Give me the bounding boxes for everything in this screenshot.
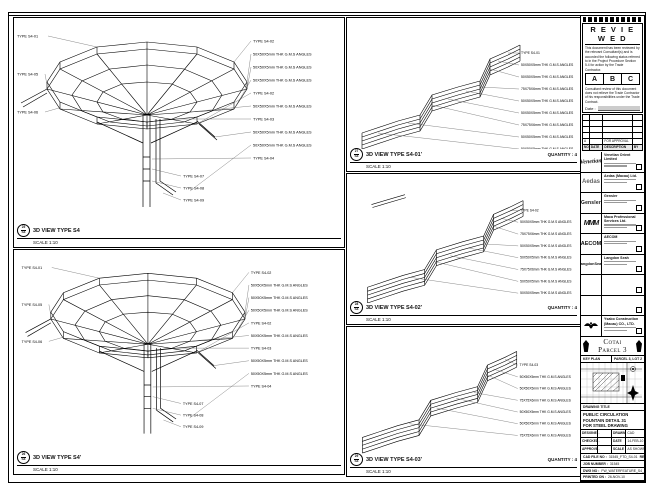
callout: 50X50X5mm THK G.M.S ANGLES xyxy=(521,99,574,103)
cad-file-no: 31545_FTD_S4-01 xyxy=(609,455,638,459)
callout: TYPE S4-04 xyxy=(251,384,271,388)
callout-labels: TYPE S4-03 50X50X5mm THK G.M.S ANGLES 50… xyxy=(520,363,572,437)
callout: TYPE S4-06 xyxy=(22,340,43,344)
ornament-icon xyxy=(583,340,589,352)
callout: 50X50X5mm THK G.M.S ANGLES xyxy=(520,410,572,414)
callout: 50X50X5mm THK G.M.S ANGLES xyxy=(251,283,308,287)
beam-bundle-drawing: TYPE S4-03 50X50X5mm THK G.M.S ANGLES 50… xyxy=(348,328,579,455)
grade-c: C xyxy=(622,74,639,84)
bubble-sheet: S4 xyxy=(355,308,359,312)
langdon-seah-logo: LangdonSeah xyxy=(581,262,601,266)
callout: TYPE S4-02 xyxy=(253,92,274,96)
consultant-name: Aedas (Macau) Ltd. xyxy=(604,174,642,178)
callout: TYPE S4-05 xyxy=(22,303,43,307)
ring-truss xyxy=(47,42,247,129)
callout: 50X50X5mm THK G.M.S ANGLES xyxy=(520,256,572,260)
detail-bubble: 26 S4 xyxy=(17,451,30,464)
revision-table: A FOR APPROVAL NO. DATE DESCRIPTION BY xyxy=(582,114,643,151)
beam-bundle-drawing: TYPE S4-01 50X50X5mm THK G.M.S ANGLES 50… xyxy=(348,19,579,149)
callout: 50X50X5mm THK G.M.S ANGLES xyxy=(520,375,572,379)
revision-by xyxy=(633,139,642,144)
grade-b: B xyxy=(604,74,622,84)
callout: TYPE S4-01 xyxy=(22,266,43,270)
callout: 50X50X5mm THK G.M.S ANGLES xyxy=(251,359,308,363)
approval-checkbox xyxy=(636,164,642,170)
view-title: 3D VIEW TYPE S4 xyxy=(33,228,80,234)
callout: TYPE S4-03 xyxy=(251,347,271,351)
dwg-number-row: DWG NO : FW_WATERFEATURE_S4_(DRAWING) xyxy=(581,468,644,475)
callout: TYPE S4-07 xyxy=(183,402,204,406)
panel-label: 27 S4 3D VIEW TYPE S4-01' QUANTITY : 4 S… xyxy=(350,148,577,169)
beam-bundle xyxy=(362,351,516,453)
callout: TYPE S4-03 xyxy=(253,118,274,122)
callout: 50X50X5mm THK G.M.S ANGLES xyxy=(253,131,312,135)
view-scale: SCALE 1:10 xyxy=(366,317,577,322)
consultant-name: AECOM xyxy=(604,235,642,239)
consultant-row-aecom: AECOM AECOM xyxy=(581,234,644,255)
detail-bubble: 25 S4 xyxy=(17,224,30,237)
detail-bubble: 28 S4 xyxy=(350,301,363,314)
reviewed-date-line: Date : xyxy=(585,106,640,111)
approval-checkbox xyxy=(636,225,642,231)
panel-label: 26 S4 3D VIEW TYPE S4' SCALE 1:10 xyxy=(17,451,341,472)
quantity-note: QUANTITY : 4 xyxy=(548,457,577,462)
callout: 75X75X6mm THK G.M.S ANGLES xyxy=(520,433,572,437)
col-date: DATE xyxy=(590,145,604,150)
project-banner: Cotai Parcel 3 xyxy=(581,337,644,357)
approval-checkbox xyxy=(636,328,642,334)
consultant-name: Maca Professional Services Ltd. xyxy=(604,215,642,224)
consultant-row-gensler: Gensler Gensler xyxy=(581,193,644,214)
approval-checkbox xyxy=(636,307,642,313)
view-panel-s4-02: TYPE S4-02 50X50X5mm THK G.M.S ANGLES 75… xyxy=(346,173,581,325)
callout: TYPE S4-02 xyxy=(520,208,539,212)
title-rule xyxy=(350,467,577,468)
bubble-sheet: S4 xyxy=(22,458,26,462)
approval-checkbox xyxy=(636,266,642,272)
callout: 50X50X5mm THK G.M.S ANGLES xyxy=(521,135,574,139)
callout: TYPE S4-07 xyxy=(183,175,204,179)
date-label: Date : xyxy=(585,106,596,111)
col-by: BY xyxy=(633,145,642,150)
approval-checkbox xyxy=(636,287,642,293)
project-name: Cotai Parcel 3 xyxy=(591,338,634,354)
approval-checkbox xyxy=(636,205,642,211)
callout-labels: TYPE S4-02 50X50X5mm THK G.M.S ANGLES 50… xyxy=(17,35,312,203)
cad-file-row: CAD FILE NO : 31545_FTD_S4-01 REV : A xyxy=(581,454,644,461)
approval-row: DESIGNED - DRAWN CAD xyxy=(581,430,644,438)
gensler-logo: Gensler xyxy=(581,200,601,206)
view-title: 3D VIEW TYPE S4-02' xyxy=(366,305,422,311)
panel-label: 28 S4 3D VIEW TYPE S4-02' QUANTITY : 4 S… xyxy=(350,301,577,322)
mmm-logo: MMM xyxy=(584,220,599,227)
callout: TYPE S4-03 xyxy=(520,363,539,367)
aecom-logo: AECOM xyxy=(581,241,601,247)
callout: TYPE S4-09 xyxy=(183,199,204,203)
contractor-row-ysabo: Ysabo Construction (Macau) CO., LTD. xyxy=(581,316,644,337)
callout: 50X50X5mm THK G.M.S ANGLES xyxy=(521,111,574,115)
drawing-title-text: PUBLIC CIRCULATION FOUNTAIN DETAIL 31 FO… xyxy=(581,411,644,430)
col-no: NO. xyxy=(583,145,590,150)
title-block-column: R E V I E W E D This document has been r… xyxy=(580,15,645,482)
consultant-name: Gensler xyxy=(604,194,642,198)
callout: 50X50X5mm THK G.M.S ANGLES xyxy=(520,291,572,295)
callout: 50X50X5mm THK G.M.S ANGLES xyxy=(520,422,572,426)
quantity-note: QUANTITY : 4 xyxy=(548,305,577,310)
view-scale: SCALE 1:10 xyxy=(366,164,577,169)
beam-bundle-drawing: TYPE S4-02 50X50X5mm THK G.M.S ANGLES 75… xyxy=(348,175,579,303)
view-panel-s4-prime: TYPE S4-02 50X50X5mm THK G.M.S ANGLES 50… xyxy=(13,249,345,475)
view-scale: SCALE 1:10 xyxy=(33,240,341,245)
title-rule xyxy=(350,315,577,316)
key-plan-map xyxy=(581,363,644,404)
callout: 50X50X5mm THK G.M.S ANGLES xyxy=(251,334,308,338)
wireframe-canopy-drawing: TYPE S4-02 50X50X5mm THK G.M.S ANGLES 50… xyxy=(15,19,343,227)
callout: 50X50X5mm THK G.M.S ANGLES xyxy=(520,220,572,224)
view-scale: SCALE 1:10 xyxy=(33,467,341,472)
revision-letter: REV : A xyxy=(640,455,644,459)
venetian-logo: Venetian xyxy=(581,158,601,165)
title-rule xyxy=(350,162,577,163)
detail-bubble: 27 S4 xyxy=(350,148,363,161)
revision-description: FOR APPROVAL xyxy=(603,139,632,144)
consultant-row-empty-2 xyxy=(581,296,644,317)
callout: TYPE S4-04 xyxy=(253,157,274,161)
panel-label: 29 S4 3D VIEW TYPE S4-03' QUANTITY : 4 S… xyxy=(350,453,577,474)
bubble-sheet: S4 xyxy=(355,155,359,159)
title-rule xyxy=(17,465,341,466)
compass-icon xyxy=(627,385,639,401)
approval-row: CHECKED - DATE 14-FEB-10 xyxy=(581,438,644,446)
callout: TYPE S4-02 xyxy=(251,271,271,275)
leader-lines xyxy=(45,36,251,200)
detail-bubble: 29 S4 xyxy=(350,453,363,466)
key-plan-ref: PARCEL 3, LOT 2 xyxy=(612,356,644,362)
ring-truss xyxy=(51,273,245,357)
contractor-name: Ysabo Construction (Macau) CO., LTD. xyxy=(604,317,642,326)
review-grade-boxes: A B C xyxy=(585,73,640,85)
revision-no: A xyxy=(583,139,590,144)
col-description: DESCRIPTION xyxy=(603,145,632,150)
printed-on-row: PRINTED ON : 26-NOV-10 xyxy=(581,474,644,481)
view-title: 3D VIEW TYPE S4' xyxy=(33,455,81,461)
reviewed-stamp: R E V I E W E D This document has been r… xyxy=(582,23,643,113)
callout: 75X75X6mm THK G.M.S ANGLES xyxy=(520,398,572,402)
view-scale: SCALE 1:10 xyxy=(366,469,577,474)
reviewed-body-2: Consultant review of this document does … xyxy=(585,87,640,104)
callout: 50X50X5mm THK G.M.S ANGLES xyxy=(253,53,312,57)
callout: TYPE S4-06 xyxy=(17,111,38,115)
callout: TYPE S4-02 xyxy=(253,40,274,44)
printed-date: 26-NOV-10 xyxy=(608,475,625,479)
consultant-row-langdon-seah: LangdonSeah Langdon Seah xyxy=(581,255,644,276)
callout: TYPE S4-01 xyxy=(521,51,540,55)
panel-label: 25 S4 3D VIEW TYPE S4 SCALE 1:10 xyxy=(17,224,341,245)
job-number-row: JOB NUMBER : 31545 xyxy=(581,461,644,468)
reviewed-title: R E V I E W E D xyxy=(585,25,640,45)
view-title: 3D VIEW TYPE S4-03' xyxy=(366,457,422,463)
key-plan-header: KEY PLAN PARCEL 3, LOT 2 xyxy=(581,356,644,363)
callout: TYPE S4-02 xyxy=(251,321,271,325)
view-panel-s4-03: TYPE S4-03 50X50X5mm THK G.M.S ANGLES 50… xyxy=(346,326,581,477)
consultant-row-empty-1 xyxy=(581,275,644,296)
leader-lines xyxy=(49,268,249,427)
approval-row: APPROVED - SCALE AS SHOWN xyxy=(581,446,644,453)
callout: 50X50X5mm THK G.M.S ANGLES xyxy=(251,309,308,313)
approval-checkbox xyxy=(636,246,642,252)
consultant-row-venetian: Venetian Venetian Orient Limited xyxy=(581,152,644,173)
date-fill-area xyxy=(598,106,640,111)
ornament-icon xyxy=(636,340,642,352)
approval-checkbox xyxy=(636,184,642,190)
callout: 75X75X6mm THK G.M.S ANGLES xyxy=(520,232,572,236)
job-number: 31545 xyxy=(610,462,619,466)
consultant-name: Langdon Seah xyxy=(604,256,642,260)
eagle-logo xyxy=(583,320,599,332)
aedas-logo: Aedas xyxy=(582,179,600,185)
drawing-title-label: DRAWING TITLE xyxy=(581,404,644,411)
view-panel-s4: TYPE S4-02 50X50X5mm THK G.M.S ANGLES 50… xyxy=(13,17,345,248)
callout-labels: TYPE S4-02 50X50X5mm THK G.M.S ANGLES 50… xyxy=(22,266,309,429)
callout: 50X50X5mm THK G.M.S ANGLES xyxy=(520,387,572,391)
callout: 75X75X6mm THK G.M.S ANGLES xyxy=(521,123,574,127)
revision-header-row: NO. DATE DESCRIPTION BY xyxy=(583,145,642,150)
beam-bundle xyxy=(368,195,524,303)
callout: TYPE S4-01 xyxy=(17,35,38,39)
revision-date xyxy=(590,139,604,144)
wireframe-canopy-drawing: TYPE S4-02 50X50X5mm THK G.M.S ANGLES 50… xyxy=(15,251,343,453)
quantity-note: QUANTITY : 4 xyxy=(548,152,577,157)
callout: 50X50X5mm THK G.M.S ANGLES xyxy=(251,296,308,300)
drawing-sheet: TYPE S4-02 50X50X5mm THK G.M.S ANGLES 50… xyxy=(8,12,646,483)
callout: TYPE S4-08 xyxy=(183,187,204,191)
key-plan-label: KEY PLAN xyxy=(581,356,612,362)
dwg-number: FW_WATERFEATURE_S4_(DRAWING) xyxy=(601,469,644,473)
callout: 50X50X5mm THK G.M.S ANGLES xyxy=(521,63,574,67)
title-rule xyxy=(17,238,341,239)
callout-labels: TYPE S4-02 50X50X5mm THK G.M.S ANGLES 75… xyxy=(520,208,572,295)
callout: 50X50X5mm THK G.M.S ANGLES xyxy=(253,79,312,83)
callout: 50X50X5mm THK G.M.S ANGLES xyxy=(251,372,308,376)
callout: 50X50X5mm THK G.M.S ANGLES xyxy=(520,244,572,248)
leader-lines xyxy=(411,210,518,293)
consultant-row-aedas: Aedas Aedas (Macau) Ltd. xyxy=(581,173,644,194)
callout: 75X75X6mm THK G.M.S ANGLES xyxy=(520,268,572,272)
sheet-border-line xyxy=(9,15,645,16)
received-stamp-strip xyxy=(583,17,642,22)
consultant-name: Venetian Orient Limited xyxy=(604,153,642,162)
bubble-sheet: S4 xyxy=(355,460,359,464)
callout: TYPE S4-09 xyxy=(183,425,204,429)
callout: TYPE S4-08 xyxy=(183,414,204,418)
callout: 50X50X5mm THK G.M.S ANGLES xyxy=(253,66,312,70)
callout: 50X50X5mm THK G.M.S ANGLES xyxy=(253,105,312,109)
view-title: 3D VIEW TYPE S4-01' xyxy=(366,152,422,158)
grade-a: A xyxy=(586,74,604,84)
callout: 75X75X6mm THK G.M.S ANGLES xyxy=(521,87,574,91)
reviewed-body-1: This document has been reviewed by the r… xyxy=(585,46,640,72)
approval-grid: DESIGNED - DRAWN CAD CHECKED - DATE 14-F… xyxy=(581,430,644,454)
callout: TYPE S4-05 xyxy=(17,73,38,77)
beam-bundle xyxy=(362,45,520,149)
callout-labels: TYPE S4-01 50X50X5mm THK G.M.S ANGLES 50… xyxy=(521,51,574,149)
view-panel-s4-01: TYPE S4-01 50X50X5mm THK G.M.S ANGLES 50… xyxy=(346,17,581,172)
bubble-sheet: S4 xyxy=(22,231,26,235)
callout: 50X50X5mm THK G.M.S ANGLES xyxy=(521,75,574,79)
callout: 50X50X5mm THK G.M.S ANGLES xyxy=(520,279,572,283)
consultant-row-maca: MMM Maca Professional Services Ltd. xyxy=(581,214,644,235)
address-lines xyxy=(604,163,636,164)
callout: 50X50X5mm THK G.M.S ANGLES xyxy=(253,144,312,148)
